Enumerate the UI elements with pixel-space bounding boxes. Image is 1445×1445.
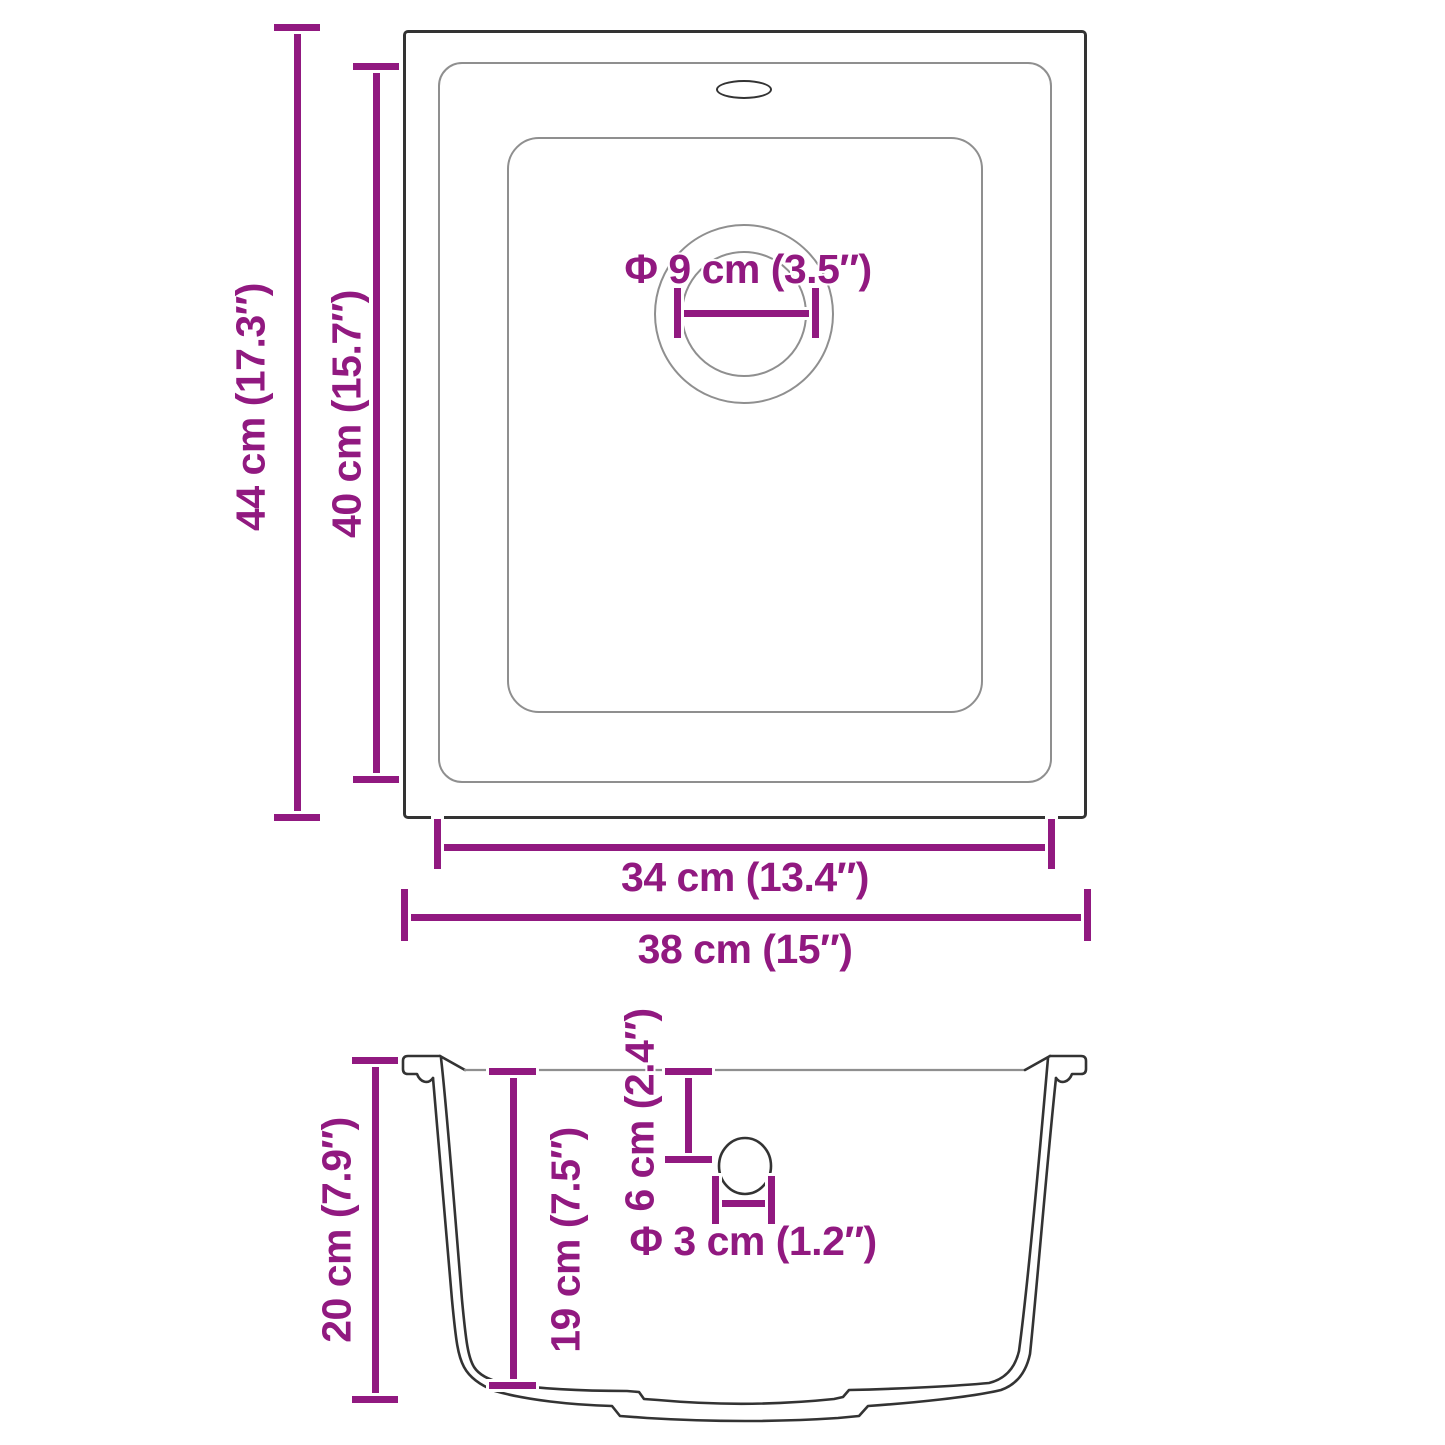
dim-drain9-tick-left <box>674 288 681 338</box>
dim-44-line <box>294 28 301 818</box>
dim-38-tick-right <box>1084 889 1091 941</box>
dim-44-label: 44 cm (17.3″) <box>229 283 272 531</box>
dim-19-line <box>510 1072 517 1386</box>
dim-drain9-label: Φ 9 cm (3.5″) <box>624 248 871 291</box>
dim-40-tick-top <box>353 63 399 70</box>
dim-drain3-line <box>716 1200 775 1207</box>
dim-6-label: 6 cm (2.4″) <box>618 1008 661 1211</box>
side-left-deck-slope <box>440 1056 465 1070</box>
dim-drain3-tick-left <box>712 1176 719 1224</box>
dim-34-label: 34 cm (13.4″) <box>621 856 869 899</box>
dim-20-label: 20 cm (7.9″) <box>315 1117 358 1343</box>
dim-drain3-label: Φ 3 cm (1.2″) <box>629 1220 876 1263</box>
dim-20-tick-bottom <box>352 1396 398 1403</box>
dim-34-tick-left <box>434 819 441 869</box>
dim-38-tick-left <box>401 889 408 941</box>
faucet-hole <box>716 80 772 99</box>
dim-6-line <box>685 1072 692 1162</box>
dim-38-line <box>404 914 1088 921</box>
dim-drain3-tick-right <box>768 1176 775 1224</box>
dim-34-tick-right <box>1048 819 1055 869</box>
dim-19-tick-bottom <box>489 1382 536 1389</box>
dim-20-line <box>372 1060 379 1402</box>
dim-6-tick-top <box>665 1068 712 1075</box>
dim-34-line <box>437 844 1052 851</box>
side-left-rim-tab <box>403 1056 440 1082</box>
dim-6-tick-bottom <box>665 1156 712 1163</box>
dim-drain9-line <box>677 310 819 317</box>
dim-20-tick-top <box>352 1057 398 1064</box>
dim-44-tick-top <box>274 24 320 31</box>
dim-40-tick-bottom <box>353 776 399 783</box>
dim-44-tick-bottom <box>274 814 320 821</box>
side-right-rim-tab <box>1050 1056 1086 1082</box>
side-drain-hole <box>719 1138 771 1194</box>
sink-dimension-diagram: 44 cm (17.3″) 40 cm (15.7″) Φ 9 cm (3.5″… <box>0 0 1445 1445</box>
dim-drain9-tick-right <box>812 288 819 338</box>
side-right-deck-slope <box>1025 1056 1050 1070</box>
dim-40-line <box>373 66 380 783</box>
dim-38-label: 38 cm (15″) <box>638 928 853 971</box>
dim-40-label: 40 cm (15.7″) <box>325 290 368 538</box>
dim-19-label: 19 cm (7.5″) <box>544 1127 587 1353</box>
dim-19-tick-top <box>489 1068 536 1075</box>
